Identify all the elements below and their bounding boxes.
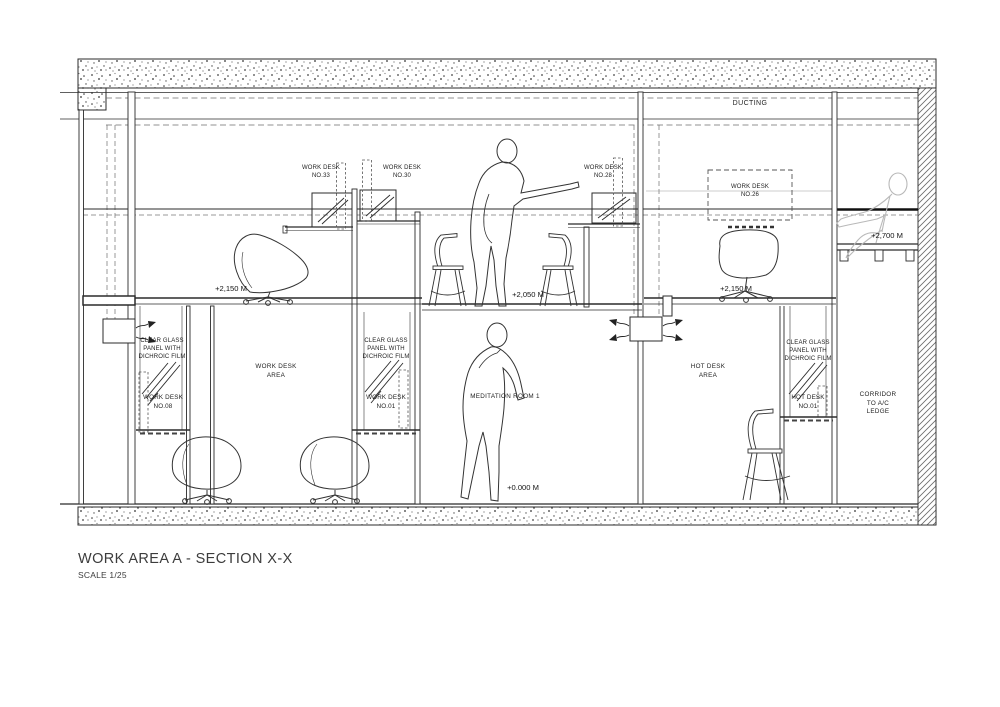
ceiling-slab [60,59,936,125]
label-work-desk-01: WORK DESK NO.01 [359,394,413,411]
level-ac-ledge: +2,700 M [859,231,915,240]
diffuser-middle [609,317,683,341]
high-stool-hot-desk [743,409,790,500]
lounge-chair-upper-left [234,234,308,305]
rail-level-lines [83,209,918,215]
label-hot-desk-01: HOT DESK NO.01 [781,394,835,411]
drawing-scale: SCALE 1/25 [78,570,127,580]
note-glass-left: CLEAR GLASS PANEL WITH DICHROIC FILM [133,337,191,361]
level-ground: +0.000 M [495,483,551,492]
label-meditation-room: MEDITATION ROOM 1 [455,393,555,402]
label-work-desk-33: WORK DESK NO.33 [294,164,348,180]
note-glass-right: CLEAR GLASS PANEL WITH DICHROIC FILM [779,339,837,363]
label-corridor: CORRIDOR TO A/C LEDGE [846,391,910,417]
glass-booth-01 [352,312,420,434]
label-work-desk-area: WORK DESK AREA [244,363,308,380]
floor-slab [60,504,936,525]
duct-drop-lines [107,125,659,319]
level-upper-middle: +2,050 M [500,290,556,299]
figure-seated-ledge [837,173,907,258]
section-drawing-sheet: DUCTING WORK DESK NO.33 WORK DESK NO.30 … [0,0,1000,707]
level-upper-right: +2,150 M [708,284,764,293]
hatched-end-wall [918,88,936,525]
drawing-title: WORK AREA A - SECTION X-X [78,551,293,567]
high-stool-1 [429,234,466,307]
figure-standing-mezzanine [471,139,579,306]
label-work-desk-30: WORK DESK NO.30 [375,164,429,180]
figure-walking-meditation-room [461,323,524,501]
label-ducting: DUCTING [700,100,800,107]
note-glass-middle: CLEAR GLASS PANEL WITH DICHROIC FILM [357,337,415,361]
level-upper-left: +2,150 M [203,284,259,293]
label-work-desk-28: WORK DESK NO.28 [576,164,630,180]
egg-chair-1 [172,437,241,504]
label-hot-desk-area: HOT DESK AREA [676,363,740,380]
egg-chair-2 [300,437,369,504]
label-work-desk-08: WORK DESK NO.08 [136,394,190,411]
label-work-desk-26: WORK DESK NO.26 [723,183,777,199]
